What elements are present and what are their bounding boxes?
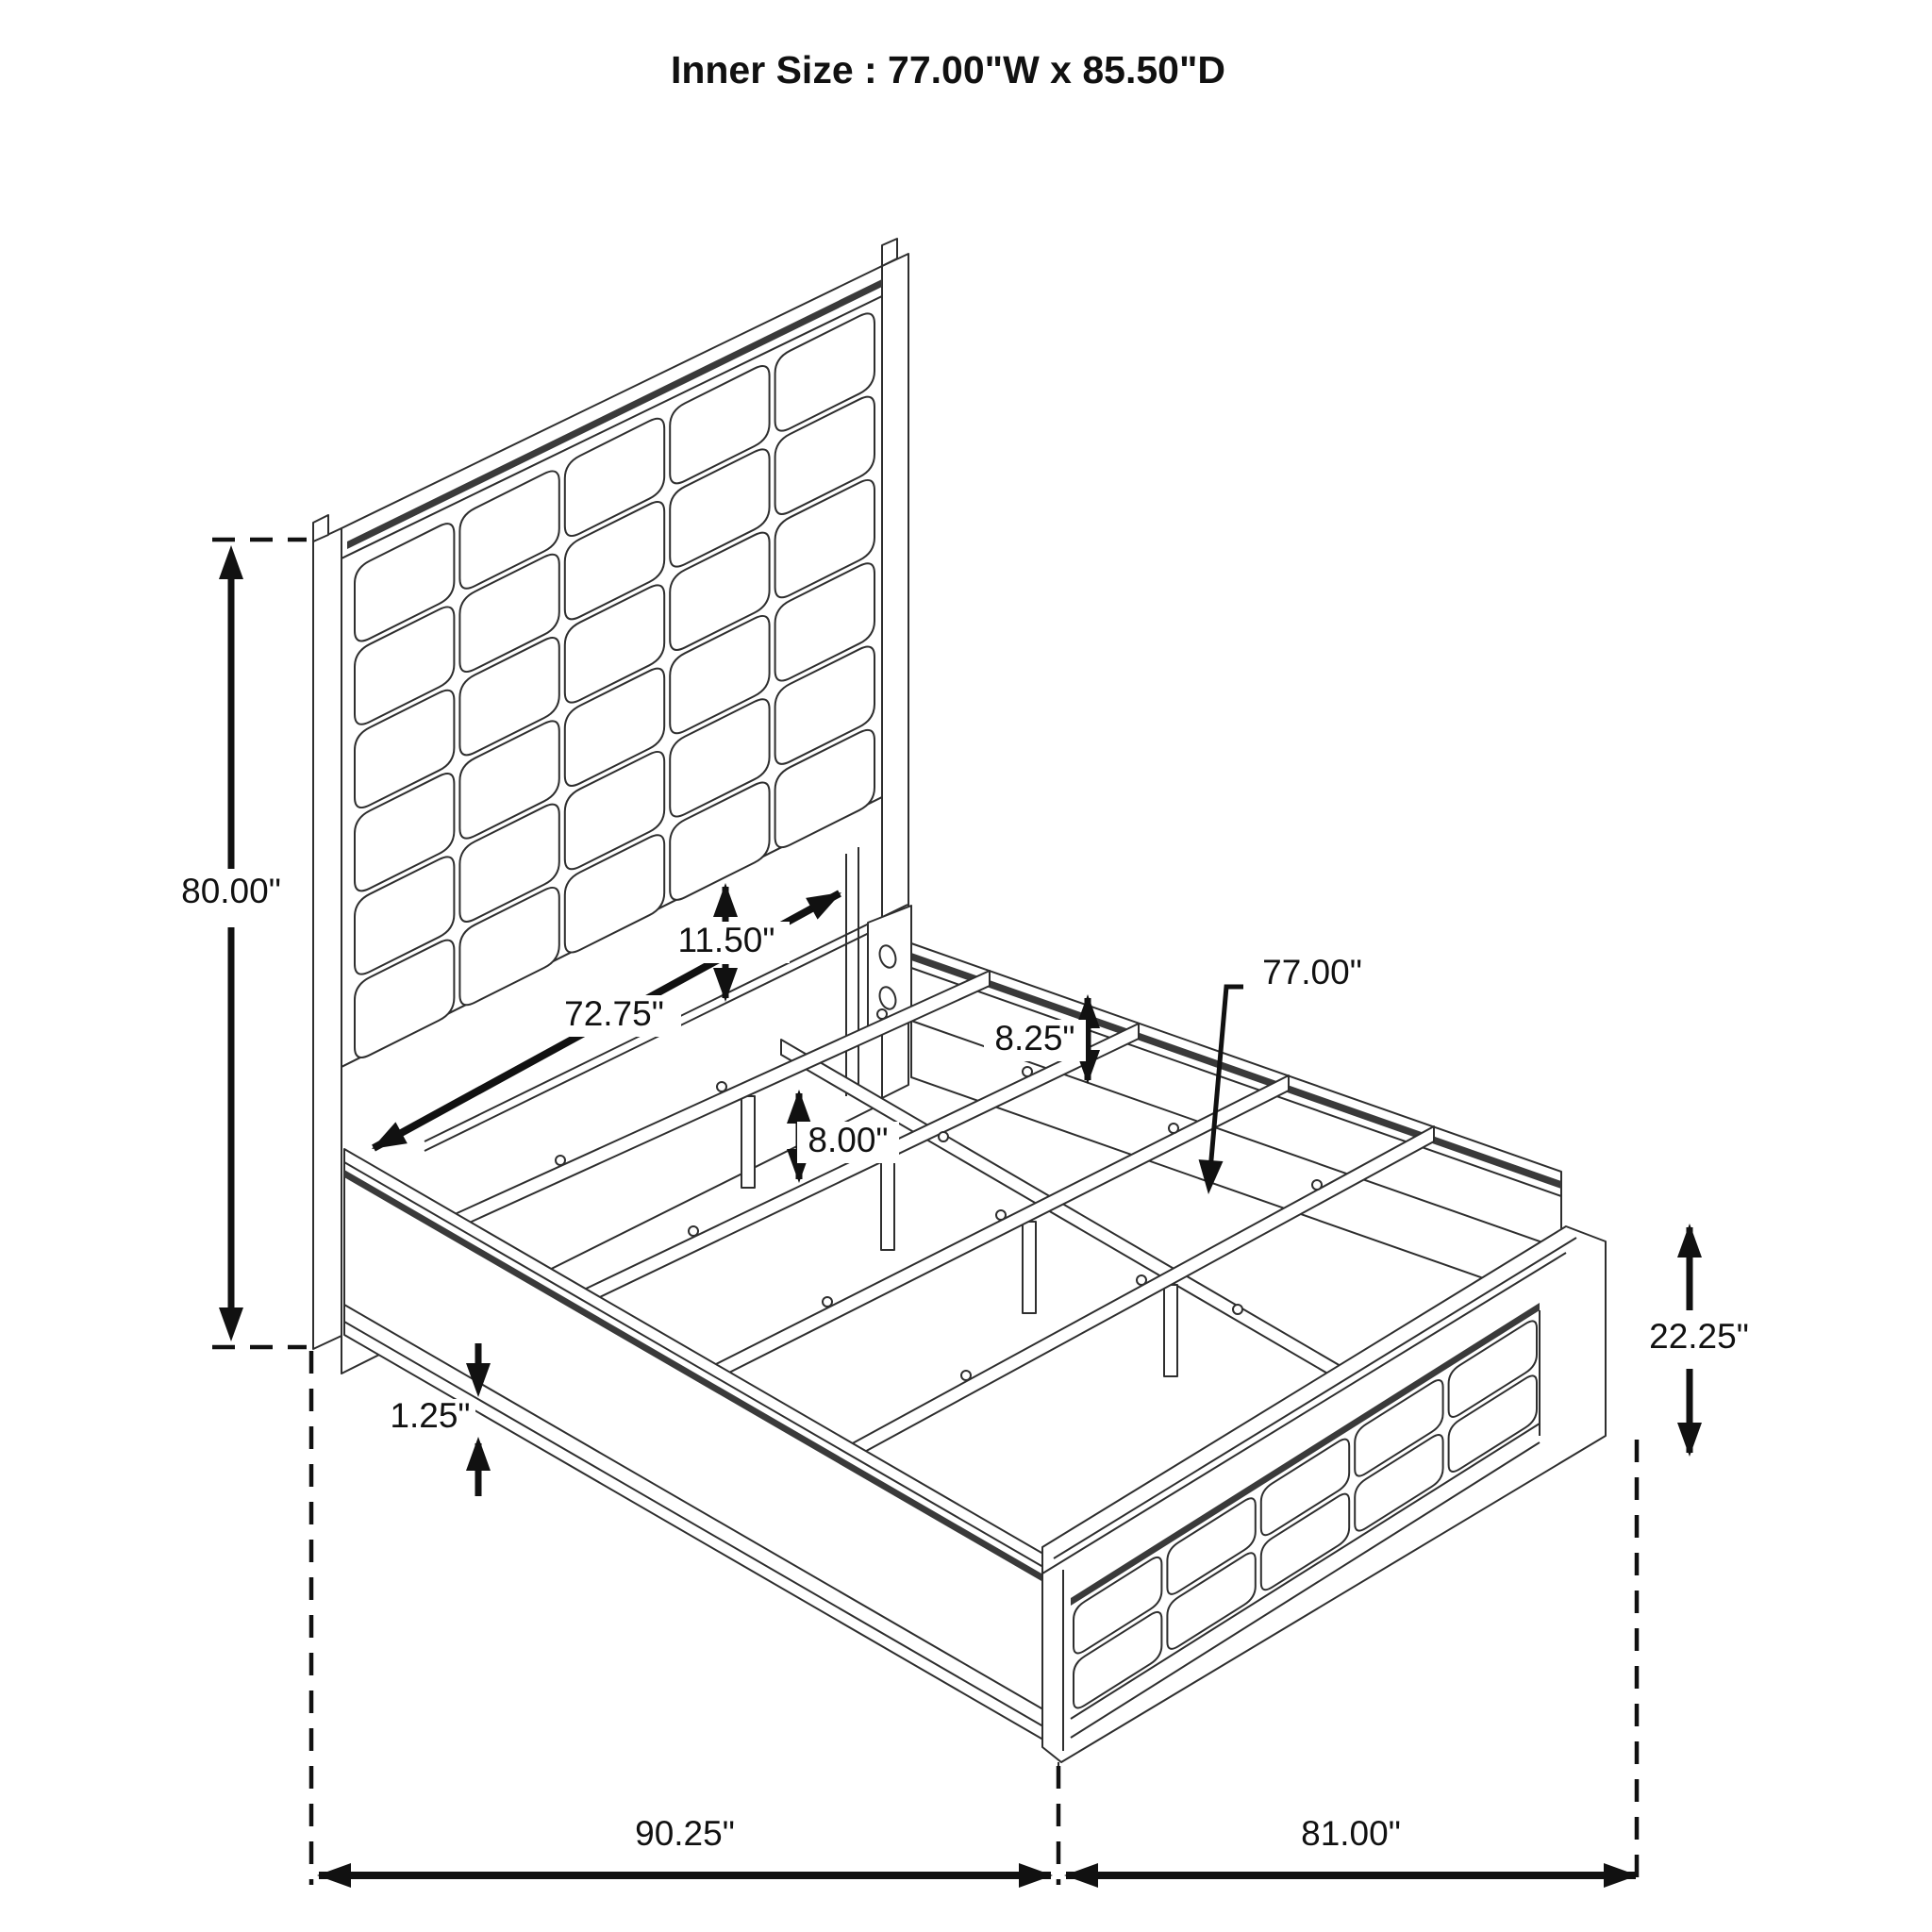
dim-footboard-height-label: 22.25" — [1649, 1317, 1749, 1356]
dim-panel-gap-label: 11.50" — [678, 921, 775, 959]
dim-rail-height-label: 8.25" — [994, 1019, 1074, 1058]
diagram-title: Inner Size : 77.00"W x 85.50"D — [671, 48, 1225, 92]
dim-overall-width-label: 81.00" — [1301, 1814, 1401, 1853]
dim-base-trim-label: 1.25" — [390, 1396, 470, 1435]
bed-frame-drawing — [313, 239, 1606, 1781]
bed-dimension-diagram: Inner Size : 77.00"W x 85.50"D 80.00" 11… — [0, 0, 1932, 1932]
dim-overall-height-label: 80.00" — [181, 872, 281, 910]
diagram-canvas: Inner Size : 77.00"W x 85.50"D 80.00" 11… — [0, 0, 1932, 1932]
dim-slat-length-label: 77.00" — [1262, 953, 1362, 991]
dim-inner-span-label: 72.75" — [564, 994, 664, 1033]
dim-leg-height-label: 8.00" — [808, 1121, 888, 1159]
dim-overall-depth-label: 90.25" — [635, 1814, 735, 1853]
